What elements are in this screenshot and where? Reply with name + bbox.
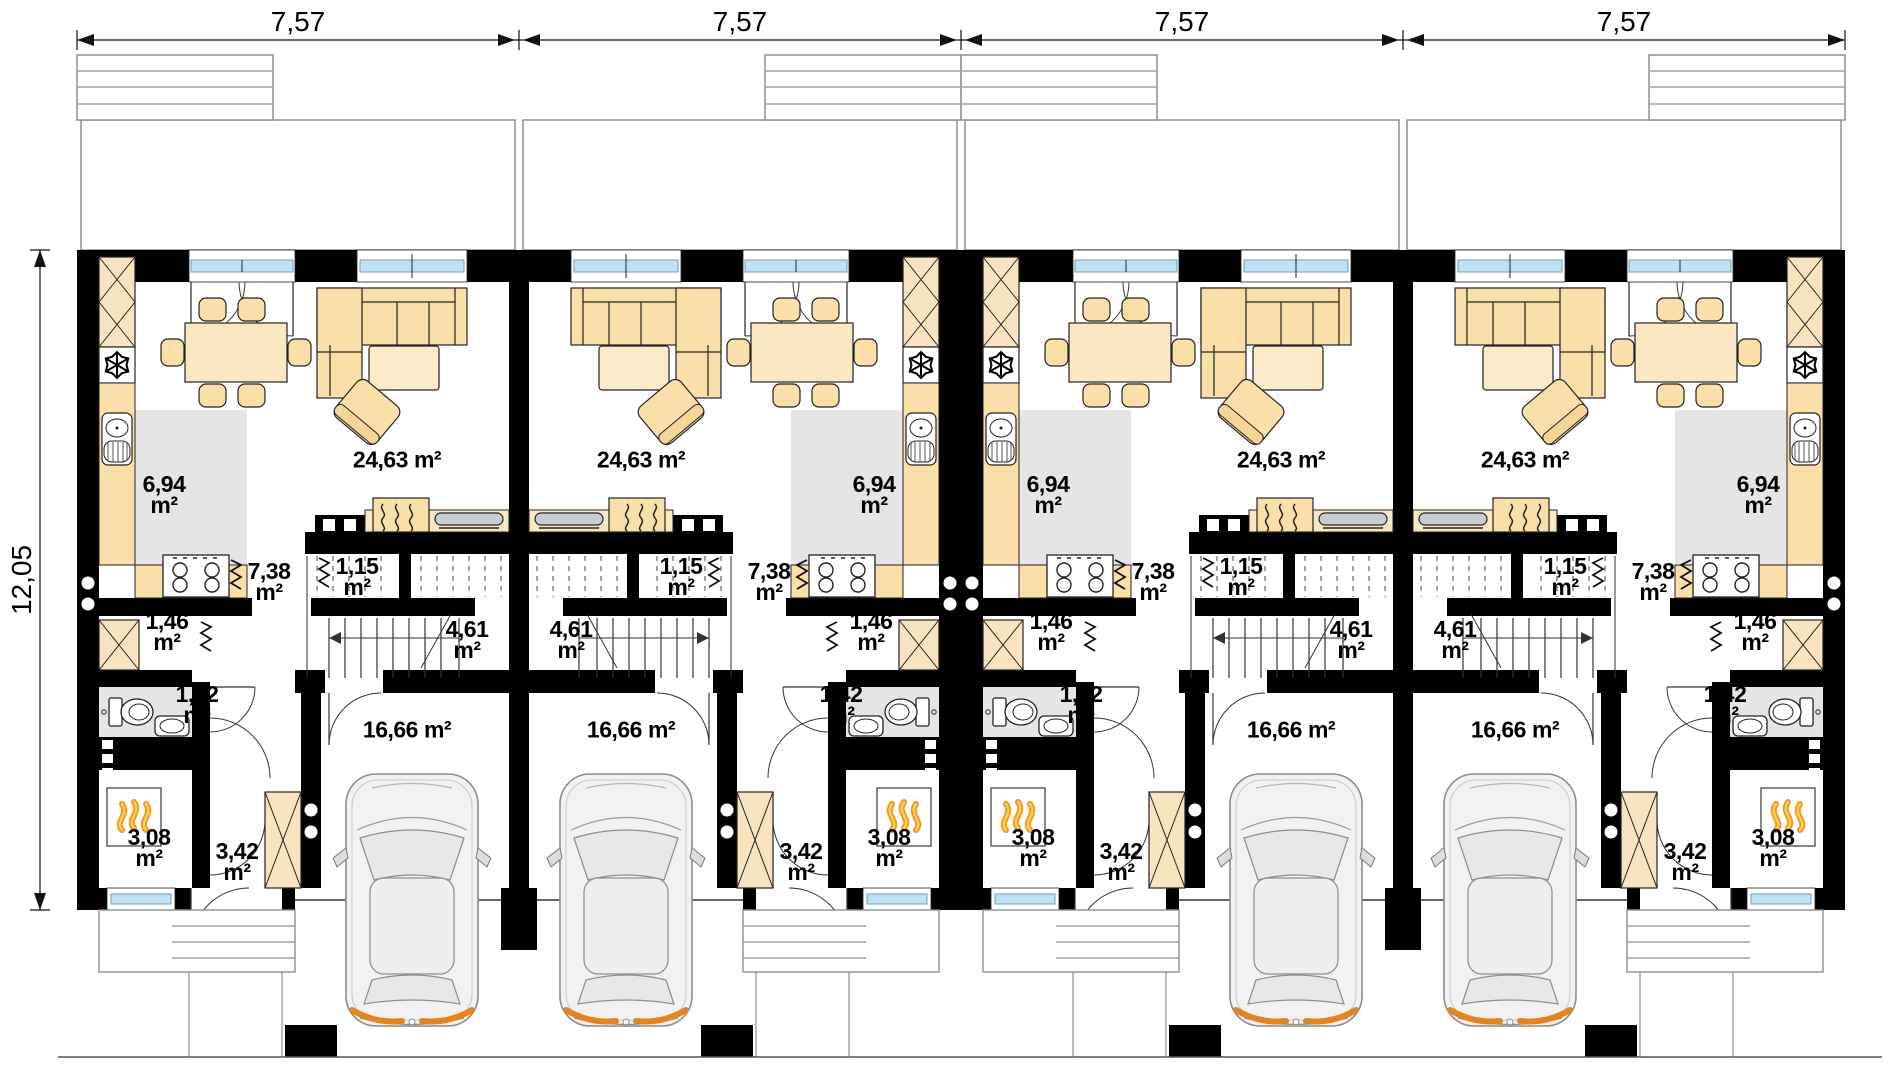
floor-plan-canvas <box>0 0 1892 1080</box>
room-label-stairs-u4: 4,61m² <box>1434 619 1477 661</box>
room-label-living-u2: 24,63m² <box>597 449 685 470</box>
room-label-hall-u2: 7,38m² <box>748 561 791 603</box>
room-label-bathroom-u3: 1,42m² <box>1060 684 1103 726</box>
room-label-kitchen-u3: 6,94m² <box>1027 474 1070 516</box>
room-label-stairs-u2: 4,61m² <box>550 619 593 661</box>
room-label-wc-u1: 1,15m² <box>336 556 379 598</box>
dim-width-unit-4: 7,57 <box>1597 6 1652 38</box>
width-dimension-line <box>77 30 1845 50</box>
room-label-garage-u4: 16,66m² <box>1471 719 1559 740</box>
room-label-boiler-u3: 3,08m² <box>1012 827 1055 869</box>
room-label-living-u1: 24,63m² <box>353 449 441 470</box>
room-label-kitchen-u4: 6,94m² <box>1737 474 1780 516</box>
unit-3 <box>961 55 1403 1057</box>
room-label-pantry-u3: 1,46m² <box>1030 611 1073 653</box>
room-label-wc-u3: 1,15m² <box>1220 556 1263 598</box>
room-label-stairs-u1: 4,61m² <box>446 619 489 661</box>
room-label-kitchen-u1: 6,94m² <box>143 474 186 516</box>
room-label-wc-u2: 1,15m² <box>660 556 703 598</box>
room-label-wc-u4: 1,15m² <box>1544 556 1587 598</box>
room-label-garage-u1: 16,66m² <box>363 719 451 740</box>
room-label-hall-u3: 7,38m² <box>1132 561 1175 603</box>
room-label-living-u3: 24,63m² <box>1237 449 1325 470</box>
room-label-bathroom-u2: 1,42m² <box>820 684 863 726</box>
room-label-stairs-u3: 4,61m² <box>1330 619 1373 661</box>
room-label-kitchen-u2: 6,94m² <box>853 474 896 516</box>
unit-1 <box>77 55 519 1057</box>
dim-width-unit-1: 7,57 <box>271 6 326 38</box>
dim-depth: 12,05 <box>6 545 38 615</box>
room-label-entry-u1: 3,42m² <box>216 841 259 883</box>
floor-plan-page: 7,57 7,57 7,57 7,57 12,05 24,63m² 6,94m²… <box>0 0 1892 1080</box>
dim-width-unit-2: 7,57 <box>713 6 768 38</box>
room-label-pantry-u2: 1,46m² <box>850 611 893 653</box>
room-label-hall-u1: 7,38m² <box>248 561 291 603</box>
room-label-entry-u3: 3,42m² <box>1100 841 1143 883</box>
room-label-boiler-u4: 3,08m² <box>1752 827 1795 869</box>
unit-2 <box>519 55 961 1057</box>
room-label-living-u4: 24,63m² <box>1481 449 1569 470</box>
unit-4 <box>1403 55 1845 1057</box>
room-label-pantry-u1: 1,46m² <box>146 611 189 653</box>
room-label-pantry-u4: 1,46m² <box>1734 611 1777 653</box>
dim-width-unit-3: 7,57 <box>1155 6 1210 38</box>
room-label-entry-u2: 3,42m² <box>780 841 823 883</box>
room-label-boiler-u2: 3,08m² <box>868 827 911 869</box>
room-label-garage-u2: 16,66m² <box>587 719 675 740</box>
room-label-hall-u4: 7,38m² <box>1632 561 1675 603</box>
room-label-garage-u3: 16,66m² <box>1247 719 1335 740</box>
room-label-boiler-u1: 3,08m² <box>128 827 171 869</box>
room-label-bathroom-u1: 1,42m² <box>176 684 219 726</box>
room-label-bathroom-u4: 1,42m² <box>1704 684 1747 726</box>
room-label-entry-u4: 3,42m² <box>1664 841 1707 883</box>
